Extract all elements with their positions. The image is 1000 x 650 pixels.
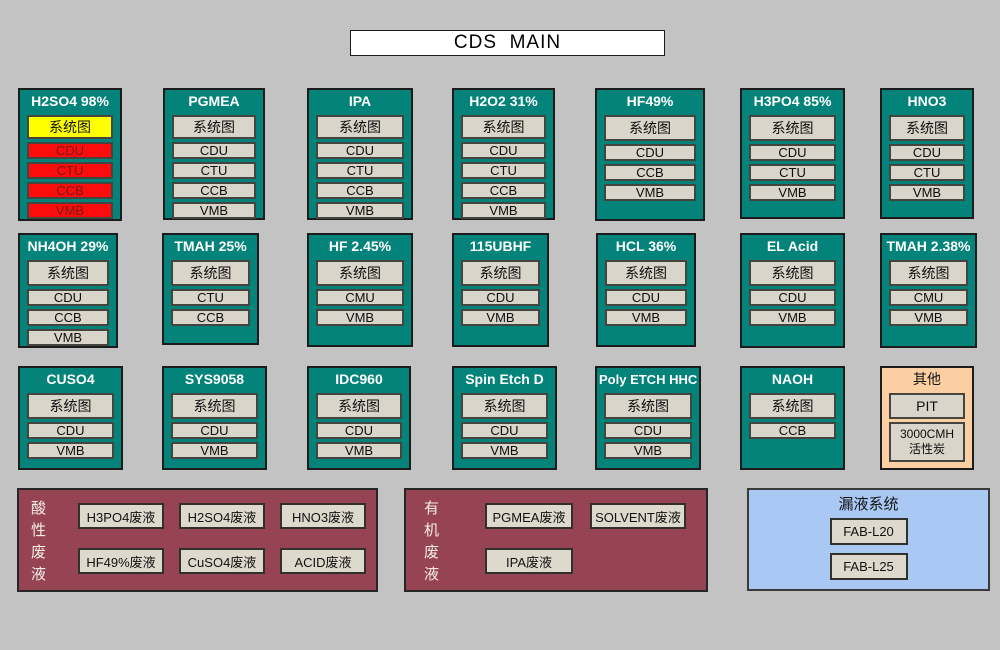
115ubhf-system-diagram-button[interactable]: 系统图 (461, 260, 540, 286)
h2so4-waste-button[interactable]: H2SO4废液 (179, 503, 265, 529)
panel-hno3: HNO3 系统图 CDU CTU VMB (880, 88, 974, 219)
panel-sys9058: SYS9058 系统图 CDU VMB (162, 366, 267, 470)
h2o2-ccb-button[interactable]: CCB (461, 182, 546, 199)
page-title: CDS MAIN (350, 30, 665, 56)
panel-title: NAOH (744, 369, 841, 390)
hf49-vmb-button[interactable]: VMB (604, 184, 696, 201)
cuso4-system-diagram-button[interactable]: 系统图 (27, 393, 114, 419)
h3po4-cdu-button[interactable]: CDU (749, 144, 836, 161)
hf245-vmb-button[interactable]: VMB (316, 309, 404, 326)
h3po4-waste-button[interactable]: H3PO4废液 (78, 503, 164, 529)
nh4oh-ccb-button[interactable]: CCB (27, 309, 109, 326)
115ubhf-cdu-button[interactable]: CDU (461, 289, 540, 306)
panel-title: TMAH 25% (166, 236, 255, 257)
panel-title: HF 2.45% (311, 236, 409, 257)
panel-cuso4: CUSO4 系统图 CDU VMB (18, 366, 123, 470)
nh4oh-vmb-button[interactable]: VMB (27, 329, 109, 346)
tmah25-system-diagram-button[interactable]: 系统图 (171, 260, 250, 286)
panel-title: Poly ETCH HHC (599, 369, 697, 390)
elacid-cdu-button[interactable]: CDU (749, 289, 836, 306)
fab-l25-button[interactable]: FAB-L25 (830, 553, 908, 580)
polyetchhhc-cdu-button[interactable]: CDU (604, 422, 692, 439)
panel-h2so4-98: H2SO4 98% 系统图 CDU CTU CCB VMB (18, 88, 122, 221)
h3po4-ctu-button[interactable]: CTU (749, 164, 836, 181)
pgmea-cdu-button[interactable]: CDU (172, 142, 256, 159)
panel-title: 115UBHF (456, 236, 545, 257)
tmah25-ctu-button[interactable]: CTU (171, 289, 250, 306)
pgmea-system-diagram-button[interactable]: 系统图 (172, 115, 256, 139)
h2so4-ctu-button[interactable]: CTU (27, 162, 113, 179)
ipa-system-diagram-button[interactable]: 系统图 (316, 115, 404, 139)
tmah238-system-diagram-button[interactable]: 系统图 (889, 260, 968, 286)
hno3-waste-button[interactable]: HNO3废液 (280, 503, 366, 529)
h2so4-system-diagram-button[interactable]: 系统图 (27, 115, 113, 139)
ipa-waste-button[interactable]: IPA废液 (485, 548, 573, 574)
naoh-ccb-button[interactable]: CCB (749, 422, 836, 439)
leak-system-title: 漏液系统 (838, 494, 898, 516)
spinetchd-system-diagram-button[interactable]: 系统图 (461, 393, 548, 419)
spinetchd-cdu-button[interactable]: CDU (461, 422, 548, 439)
cuso4-vmb-button[interactable]: VMB (27, 442, 114, 459)
panel-idc960: IDC960 系统图 CDU VMB (307, 366, 411, 470)
panel-hcl-36: HCL 36% 系统图 CDU VMB (596, 233, 696, 347)
tmah25-ccb-button[interactable]: CCB (171, 309, 250, 326)
ipa-ctu-button[interactable]: CTU (316, 162, 404, 179)
panel-pgmea: PGMEA 系统图 CDU CTU CCB VMB (163, 88, 265, 220)
organic-waste-panel: 有机废液 PGMEA废液 SOLVENT废液 IPA废液 (404, 488, 708, 592)
panel-title: 其他 (884, 369, 970, 390)
ipa-ccb-button[interactable]: CCB (316, 182, 404, 199)
pgmea-vmb-button[interactable]: VMB (172, 202, 256, 219)
solvent-waste-button[interactable]: SOLVENT废液 (590, 503, 686, 529)
hf49-cdu-button[interactable]: CDU (604, 144, 696, 161)
cuso4-cdu-button[interactable]: CDU (27, 422, 114, 439)
hno3-system-diagram-button[interactable]: 系统图 (889, 115, 965, 141)
panel-title: HNO3 (884, 91, 970, 112)
other-activated-carbon-button[interactable]: 3000CMH 活性炭 (889, 422, 965, 462)
page-title-text: CDS MAIN (454, 32, 561, 54)
idc960-vmb-button[interactable]: VMB (316, 442, 402, 459)
panel-naoh: NAOH 系统图 CCB (740, 366, 845, 470)
panel-title: NH4OH 29% (22, 236, 114, 257)
panel-tmah-25: TMAH 25% 系统图 CTU CCB (162, 233, 259, 345)
hcl-vmb-button[interactable]: VMB (605, 309, 687, 326)
h2o2-cdu-button[interactable]: CDU (461, 142, 546, 159)
h2o2-ctu-button[interactable]: CTU (461, 162, 546, 179)
panel-title: EL Acid (744, 236, 841, 257)
hno3-cdu-button[interactable]: CDU (889, 144, 965, 161)
acid-waste-button[interactable]: ACID废液 (280, 548, 366, 574)
h2so4-ccb-button[interactable]: CCB (27, 182, 113, 199)
h2so4-vmb-button[interactable]: VMB (27, 202, 113, 219)
pgmea-ccb-button[interactable]: CCB (172, 182, 256, 199)
panel-h3po4-85: H3PO4 85% 系统图 CDU CTU VMB (740, 88, 845, 219)
other-pit-button[interactable]: PIT (889, 393, 965, 419)
nh4oh-system-diagram-button[interactable]: 系统图 (27, 260, 109, 286)
nh4oh-cdu-button[interactable]: CDU (27, 289, 109, 306)
pgmea-ctu-button[interactable]: CTU (172, 162, 256, 179)
cds-main-screen: CDS MAIN H2SO4 98% 系统图 CDU CTU CCB VMB P… (0, 0, 1000, 650)
panel-title: Spin Etch D (456, 369, 553, 390)
panel-el-acid: EL Acid 系统图 CDU VMB (740, 233, 845, 348)
panel-hf49: HF49% 系统图 CDU CCB VMB (595, 88, 705, 221)
h2o2-system-diagram-button[interactable]: 系统图 (461, 115, 546, 139)
cuso4-waste-button[interactable]: CuSO4废液 (179, 548, 265, 574)
idc960-cdu-button[interactable]: CDU (316, 422, 402, 439)
hf49-system-diagram-button[interactable]: 系统图 (604, 115, 696, 141)
panel-ipa: IPA 系统图 CDU CTU CCB VMB (307, 88, 413, 220)
spinetchd-vmb-button[interactable]: VMB (461, 442, 548, 459)
panel-title: CUSO4 (22, 369, 119, 390)
ipa-vmb-button[interactable]: VMB (316, 202, 404, 219)
idc960-system-diagram-button[interactable]: 系统图 (316, 393, 402, 419)
panel-title: HF49% (599, 91, 701, 112)
panel-h2o2-31: H2O2 31% 系统图 CDU CTU CCB VMB (452, 88, 555, 220)
tmah238-cmu-button[interactable]: CMU (889, 289, 968, 306)
sys9058-vmb-button[interactable]: VMB (171, 442, 258, 459)
panel-other: 其他 PIT 3000CMH 活性炭 (880, 366, 974, 470)
organic-waste-label: 有机废液 (424, 498, 444, 590)
hno3-vmb-button[interactable]: VMB (889, 184, 965, 201)
panel-title: H3PO4 85% (744, 91, 841, 112)
panel-title: IDC960 (311, 369, 407, 390)
leak-system-panel: 漏液系统 FAB-L20 FAB-L25 (747, 488, 990, 591)
panel-title: SYS9058 (166, 369, 263, 390)
pgmea-waste-button[interactable]: PGMEA废液 (485, 503, 573, 529)
panel-nh4oh-29: NH4OH 29% 系统图 CDU CCB VMB (18, 233, 118, 348)
panel-115ubhf: 115UBHF 系统图 CDU VMB (452, 233, 549, 347)
panel-hf-245: HF 2.45% 系统图 CMU VMB (307, 233, 413, 347)
panel-title: PGMEA (167, 91, 261, 112)
sys9058-cdu-button[interactable]: CDU (171, 422, 258, 439)
h3po4-vmb-button[interactable]: VMB (749, 184, 836, 201)
elacid-vmb-button[interactable]: VMB (749, 309, 836, 326)
h3po4-system-diagram-button[interactable]: 系统图 (749, 115, 836, 141)
panel-title: H2O2 31% (456, 91, 551, 112)
115ubhf-vmb-button[interactable]: VMB (461, 309, 540, 326)
panel-title: TMAH 2.38% (884, 236, 973, 257)
fab-l20-button[interactable]: FAB-L20 (830, 518, 908, 545)
polyetchhhc-vmb-button[interactable]: VMB (604, 442, 692, 459)
panel-title: HCL 36% (600, 236, 692, 257)
h2o2-vmb-button[interactable]: VMB (461, 202, 546, 219)
hno3-ctu-button[interactable]: CTU (889, 164, 965, 181)
h2so4-cdu-button[interactable]: CDU (27, 142, 113, 159)
polyetchhhc-system-diagram-button[interactable]: 系统图 (604, 393, 692, 419)
acid-waste-buttons: H3PO4废液 H2SO4废液 HNO3废液 HF49%废液 CuSO4废液 A… (51, 490, 366, 590)
hf49-ccb-button[interactable]: CCB (604, 164, 696, 181)
hf245-cmu-button[interactable]: CMU (316, 289, 404, 306)
acid-waste-label: 酸性废液 (31, 498, 51, 590)
hf245-system-diagram-button[interactable]: 系统图 (316, 260, 404, 286)
naoh-system-diagram-button[interactable]: 系统图 (749, 393, 836, 419)
organic-waste-buttons: PGMEA废液 SOLVENT废液 IPA废液 (444, 490, 686, 590)
hcl-cdu-button[interactable]: CDU (605, 289, 687, 306)
panel-tmah-238: TMAH 2.38% 系统图 CMU VMB (880, 233, 977, 348)
panel-title: H2SO4 98% (22, 91, 118, 112)
sys9058-system-diagram-button[interactable]: 系统图 (171, 393, 258, 419)
ipa-cdu-button[interactable]: CDU (316, 142, 404, 159)
panel-title: IPA (311, 91, 409, 112)
panel-spin-etch-d: Spin Etch D 系统图 CDU VMB (452, 366, 557, 470)
hcl-system-diagram-button[interactable]: 系统图 (605, 260, 687, 286)
acid-waste-panel: 酸性废液 H3PO4废液 H2SO4废液 HNO3废液 HF49%废液 CuSO… (17, 488, 378, 592)
hf49-waste-button[interactable]: HF49%废液 (78, 548, 164, 574)
panel-poly-etch-hhc: Poly ETCH HHC 系统图 CDU VMB (595, 366, 701, 470)
elacid-system-diagram-button[interactable]: 系统图 (749, 260, 836, 286)
tmah238-vmb-button[interactable]: VMB (889, 309, 968, 326)
